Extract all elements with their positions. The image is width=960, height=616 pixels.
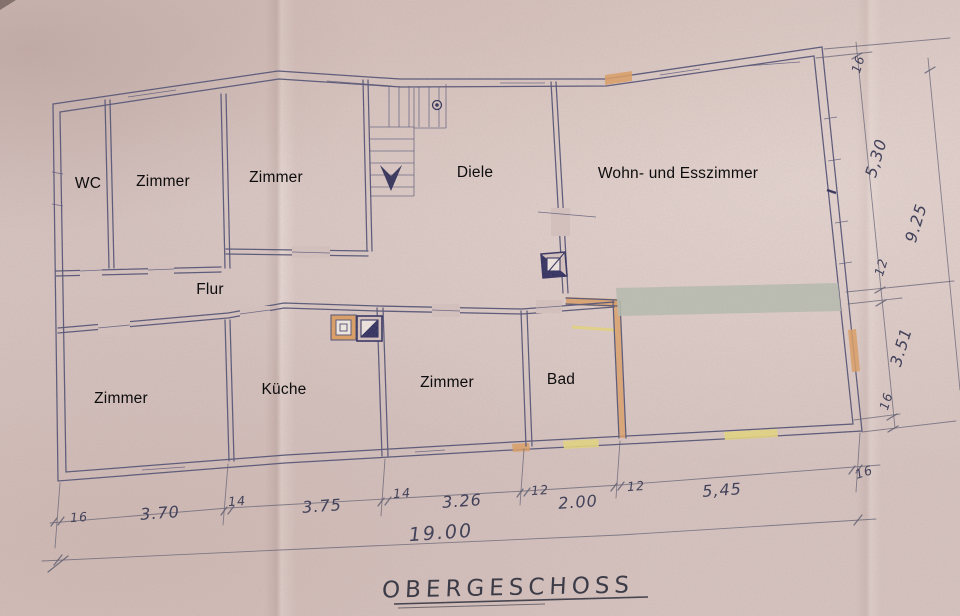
room-label-flur: Flur [196,281,224,299]
room-label-bad: Bad [547,371,575,389]
dimension-total-bottom: 19.00 [408,520,474,546]
dimension-label: 3.75 [302,495,343,517]
room-label-zimmer-top-1: Zimmer [136,173,190,191]
floorplan-scan: WC Zimmer Zimmer Diele Wohn- und Esszimm… [0,0,960,616]
dimension-label: 12 [627,478,646,494]
room-label-kueche: Küche [262,381,307,399]
dimension-label: 3.26 [442,490,483,512]
dimension-label: 5,45 [702,479,743,501]
dimension-label: 14 [228,493,247,509]
room-label-zimmer-top-2: Zimmer [249,169,303,187]
room-label-zimmer-bottom-mid: Zimmer [420,374,474,392]
dimension-label: 12 [531,482,550,498]
dimension-label: 2.00 [558,491,599,513]
room-label-zimmer-bottom-left: Zimmer [94,390,148,408]
room-label-diele: Diele [457,164,493,182]
dimension-label: 14 [393,485,412,501]
dimension-label: 16 [70,509,89,525]
room-label-wohn-esszimmer: Wohn- und Esszimmer [598,165,758,183]
dimension-label: 3.70 [140,502,181,524]
plan-title: OBERGESCHOSS [381,572,634,603]
room-label-wc: WC [75,175,101,193]
